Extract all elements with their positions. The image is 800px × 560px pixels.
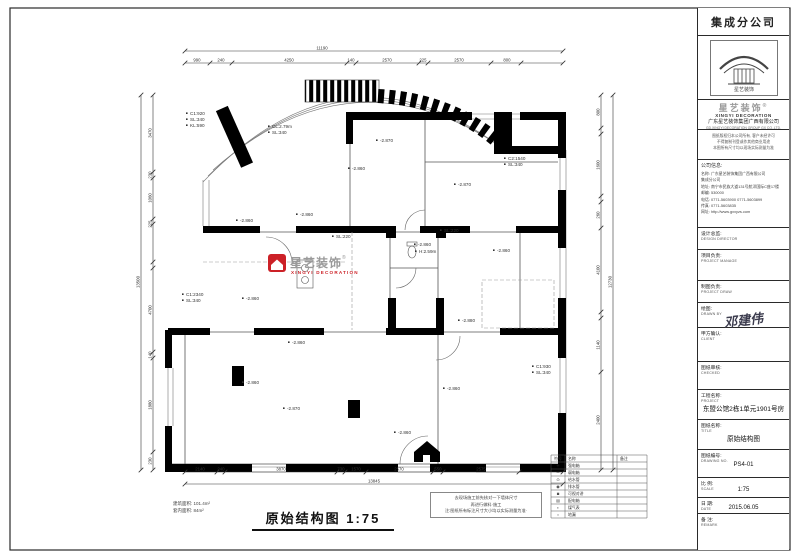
watermark-brand-en: XINGYI DECORATION <box>291 270 359 275</box>
field-value: 原始结构图 <box>700 433 787 443</box>
disclaimer: 图纸版权归本公司所有, 客户未经许可不得复制刊登或作其他商业用途本图所有尺寸均以… <box>698 130 789 160</box>
field-label-en: PROJECT MANAGE <box>701 259 737 263</box>
svg-text:SL:340: SL:340 <box>272 130 287 135</box>
area-line: 套内面积: 84m² <box>173 507 210 514</box>
svg-text:2570: 2570 <box>454 58 464 63</box>
svg-text:3470: 3470 <box>148 128 153 138</box>
floor-plan: 星艺装饰 ® XINGYI DECORATION 111909902404250… <box>0 0 800 560</box>
plan-title: 原始结构图 1:75 <box>252 508 394 531</box>
field-value: 东盟公馆2栋1单元1901号房 <box>700 403 787 413</box>
svg-text:-2.870: -2.870 <box>287 406 300 411</box>
brand-block: 星艺装饰® XINGYI DECORATION 广东星艺装饰集团广西有限公司 G… <box>698 100 789 130</box>
svg-text:C2:1540: C2:1540 <box>508 156 526 161</box>
svg-text:SL:340: SL:340 <box>186 298 201 303</box>
svg-text:-2.860: -2.860 <box>240 218 253 223</box>
svg-text:SL:220: SL:220 <box>336 234 351 239</box>
company-info: 公司信息: 名称: 广东星艺装饰集团广西有限公司 集成分公司地址: 南宁市民族大… <box>698 160 789 228</box>
field-label: 图纸名称: <box>701 422 722 429</box>
svg-text:SL:340: SL:340 <box>508 162 523 167</box>
titleblock-field-project-name: 工程名称:PROJECT东盟公馆2栋1单元1901号房 <box>698 390 789 420</box>
svg-text:SL:340: SL:340 <box>536 370 551 375</box>
svg-text:-2.860: -2.860 <box>292 340 305 345</box>
level-annotations: -2.860-2.870-2.870-2.860-2.860-2.860H:2.… <box>182 111 551 435</box>
company-logo: 星艺装饰 <box>698 36 789 100</box>
svg-text:▤: ▤ <box>556 498 560 503</box>
svg-text:配电箱: 配电箱 <box>568 498 580 503</box>
svg-text:1060: 1060 <box>148 193 153 203</box>
svg-text:11190: 11190 <box>316 46 328 51</box>
svg-text:强电箱: 强电箱 <box>568 463 580 468</box>
dashed-lines <box>203 232 554 330</box>
field-value: 1:75 <box>700 487 787 493</box>
svg-text:225: 225 <box>419 58 427 63</box>
titleblock-field-drawing-title: 图纸名称:TITLE原始结构图 <box>698 420 789 450</box>
watermark-logo: 星艺装饰 ® XINGYI DECORATION <box>268 254 359 275</box>
svg-text:KL:590: KL:590 <box>190 123 205 128</box>
svg-text:可视对讲: 可视对讲 <box>568 491 584 496</box>
company-info-line: 网址: http://www.gxxyzs.com <box>701 209 786 215</box>
svg-text:给水管: 给水管 <box>568 477 580 482</box>
svg-text:2140: 2140 <box>195 467 205 472</box>
field-label: 图纸编号: <box>701 452 722 459</box>
svg-text:C1:2340: C1:2340 <box>186 292 204 297</box>
entry-house-icon <box>414 441 440 462</box>
svg-text:4100: 4100 <box>596 265 601 275</box>
field-label: 制图负责: <box>701 283 722 290</box>
logo-caption: 星艺装饰 <box>733 86 753 93</box>
svg-text:CL:2.79m: CL:2.79m <box>272 124 292 129</box>
svg-text:260: 260 <box>596 211 601 219</box>
svg-text:1880: 1880 <box>148 400 153 410</box>
field-label: 甲方确认: <box>701 330 722 337</box>
svg-text:990: 990 <box>193 58 201 63</box>
svg-text:◙: ◙ <box>557 491 560 496</box>
svg-text:⊙: ⊙ <box>556 477 559 482</box>
svg-text:240: 240 <box>217 58 225 63</box>
svg-text:-2.860: -2.860 <box>418 242 431 247</box>
svg-text:-2.870: -2.870 <box>458 182 471 187</box>
svg-text:13845: 13845 <box>368 479 381 484</box>
svg-text:-2.860: -2.860 <box>246 380 259 385</box>
svg-text:2575: 2575 <box>476 467 486 472</box>
svg-text:▪: ▪ <box>557 505 559 510</box>
svg-text:SL:220: SL:220 <box>444 228 459 233</box>
titleblock-fields: 设计总监:DESIGN DIRECTOR项目负责:PROJECT MANAGE制… <box>698 228 789 550</box>
field-label: 项目负责: <box>701 252 722 259</box>
svg-text:730: 730 <box>337 467 345 472</box>
svg-text:-2.860: -2.860 <box>300 212 313 217</box>
svg-text:1140: 1140 <box>596 340 601 350</box>
logo-frame: 星艺装饰 <box>710 40 778 96</box>
company-info-lines: 名称: 广东星艺装饰集团广西有限公司 集成分公司地址: 南宁市民族大道131号航… <box>701 171 786 216</box>
svg-text:名称: 名称 <box>568 456 576 461</box>
branch-company-header: 集成分公司 <box>698 8 789 36</box>
svg-text:备注: 备注 <box>620 456 628 461</box>
svg-text:4250: 4250 <box>284 58 294 63</box>
titleblock-field-drawn-by: 绘图:DRAWN BY邓建伟 <box>698 303 789 328</box>
disclaimer-line: 本图所有尺寸均以现场实际测量为准 <box>700 145 787 151</box>
svg-text:-2.860: -2.860 <box>447 386 460 391</box>
area-text: 建筑面积: 101.4m² 套内面积: 84m² <box>173 500 210 514</box>
field-label: 设计总监: <box>701 230 722 237</box>
field-label: 图纸审核: <box>701 364 722 371</box>
svg-text:240: 240 <box>217 467 225 472</box>
svg-text:-2.880: -2.880 <box>462 318 475 323</box>
svg-text:1600: 1600 <box>596 160 601 170</box>
watermark-brand-cn: 星艺装饰 <box>290 255 342 270</box>
svg-text:1570: 1570 <box>351 467 361 472</box>
titleblock: 集成分公司 星艺装饰 星艺装饰® XINGYI DECORATION <box>697 8 789 550</box>
interior-walls <box>165 118 566 464</box>
field-label-en: CHECKED <box>701 371 720 375</box>
note-line: 注:图纸所有标注尺寸大小均以实际测量为准· <box>433 508 539 515</box>
svg-text:排水管: 排水管 <box>568 484 580 489</box>
svg-text:225: 225 <box>148 220 153 228</box>
svg-text:H:2.59m: H:2.59m <box>419 249 437 254</box>
svg-text:12730: 12730 <box>608 275 613 288</box>
svg-text:＋: ＋ <box>556 463 560 468</box>
titleblock-field-drawing-no: 图纸编号:DRAWING NO.PS4-01 <box>698 450 789 478</box>
field-label: 备 注: <box>701 516 713 523</box>
titleblock-field-project-manager: 项目负责:PROJECT MANAGE <box>698 250 789 281</box>
svg-text:230: 230 <box>148 171 153 179</box>
svg-text:弱电箱: 弱电箱 <box>568 470 580 475</box>
svg-text:SL:340: SL:340 <box>190 117 205 122</box>
field-label-en: DESIGN DIRECTOR <box>701 237 737 241</box>
svg-text:-2.860: -2.860 <box>497 248 510 253</box>
svg-text:2570: 2570 <box>382 58 392 63</box>
svg-text:-2.860: -2.860 <box>398 430 411 435</box>
brand-name-cn: 星艺装饰® <box>698 101 789 113</box>
field-label-en: CLIENT <box>701 337 715 341</box>
svg-text:C1:920: C1:920 <box>190 111 205 116</box>
svg-text:符号: 符号 <box>554 456 562 461</box>
svg-text:2400: 2400 <box>596 415 601 425</box>
svg-text:◉: ◉ <box>556 484 560 489</box>
svg-text:○: ○ <box>557 512 559 517</box>
field-value: 2015.06.05 <box>700 505 787 511</box>
svg-text:800: 800 <box>596 108 601 116</box>
drawing-sheet: 星艺装饰 ® XINGYI DECORATION 111909902404250… <box>0 0 800 560</box>
company-info-header: 公司信息: <box>701 162 786 169</box>
svg-text:-2.860: -2.860 <box>352 166 365 171</box>
svg-text:550: 550 <box>434 467 442 472</box>
field-label: 绘图: <box>701 305 712 312</box>
titleblock-field-design-director: 设计总监:DESIGN DIRECTOR <box>698 228 789 250</box>
titleblock-field-checked: 图纸审核:CHECKED <box>698 362 789 390</box>
svg-text:230: 230 <box>148 457 153 465</box>
svg-text:煤气表: 煤气表 <box>568 505 580 510</box>
company-name-cn: 广东星艺装饰集团广西有限公司 <box>702 119 786 125</box>
titleblock-field-project-draw: 制图负责:PROJECT DRAW <box>698 281 789 303</box>
titleblock-field-scale: 比 例:SCALE1:75 <box>698 478 789 498</box>
svg-text:13500: 13500 <box>136 275 141 288</box>
house-logo-icon: 星艺装饰 <box>714 43 774 93</box>
titleblock-field-remark: 备 注:REMARK <box>698 514 789 550</box>
field-label: 工程名称: <box>701 392 722 399</box>
watermark-reg: ® <box>342 254 346 261</box>
svg-text:地漏: 地漏 <box>568 512 576 517</box>
svg-text:800: 800 <box>503 58 511 63</box>
titleblock-field-client: 甲方确认:CLIENT <box>698 328 789 362</box>
svg-text:140: 140 <box>347 58 355 63</box>
svg-text:2570: 2570 <box>394 467 404 472</box>
titleblock-field-date: 日 期:DATE2015.06.05 <box>698 498 789 514</box>
svg-text:-2.860: -2.860 <box>246 296 259 301</box>
svg-text:4700: 4700 <box>148 305 153 315</box>
field-value: PS4-01 <box>700 462 787 468</box>
dimension-lines: 1119099024042501402570225257080021402403… <box>136 46 616 487</box>
svg-text:－: － <box>556 470 560 475</box>
field-label-en: REMARK <box>701 523 718 527</box>
svg-text:140: 140 <box>148 351 153 359</box>
note-box: 去现场施工前先核对一下墙体尺寸 再进行做料·施工 注:图纸所有标注尺寸大小均以实… <box>430 492 542 518</box>
svg-text:3870: 3870 <box>276 467 286 472</box>
brand-name-en: XINGYI DECORATION <box>698 113 789 119</box>
svg-text:-2.870: -2.870 <box>380 138 393 143</box>
svg-text:C1:930: C1:930 <box>536 364 551 369</box>
area-line: 建筑面积: 101.4m² <box>173 500 210 507</box>
field-label-en: PROJECT DRAW <box>701 290 732 294</box>
